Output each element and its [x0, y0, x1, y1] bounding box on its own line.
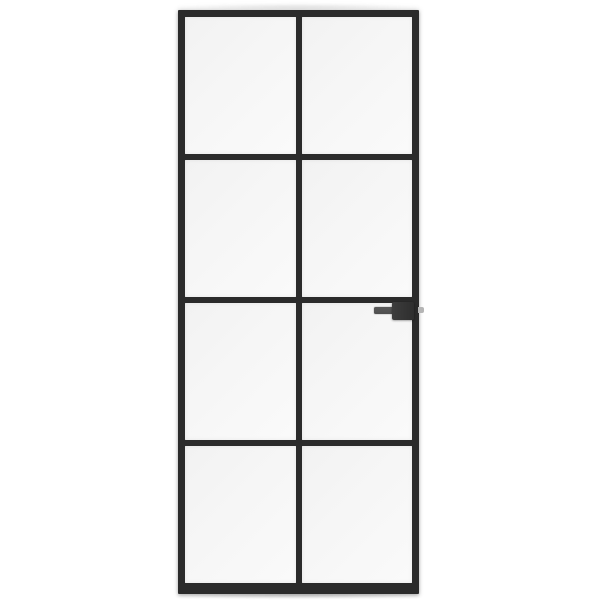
glass-pane-row1-left: [185, 17, 296, 154]
glass-pane-row2-right: [302, 160, 413, 297]
latch-bolt: [418, 307, 424, 313]
glass-pane-row3-left: [185, 303, 296, 440]
glass-pane-row1-right: [302, 17, 413, 154]
product-photo: [0, 0, 600, 600]
glass-pane-row2-left: [185, 160, 296, 297]
glass-door: [178, 10, 419, 594]
pane-grid: [185, 17, 412, 583]
glass-pane-row3-right: [302, 303, 413, 440]
glass-pane-row4-left: [185, 446, 296, 583]
glass-pane-row4-right: [302, 446, 413, 583]
